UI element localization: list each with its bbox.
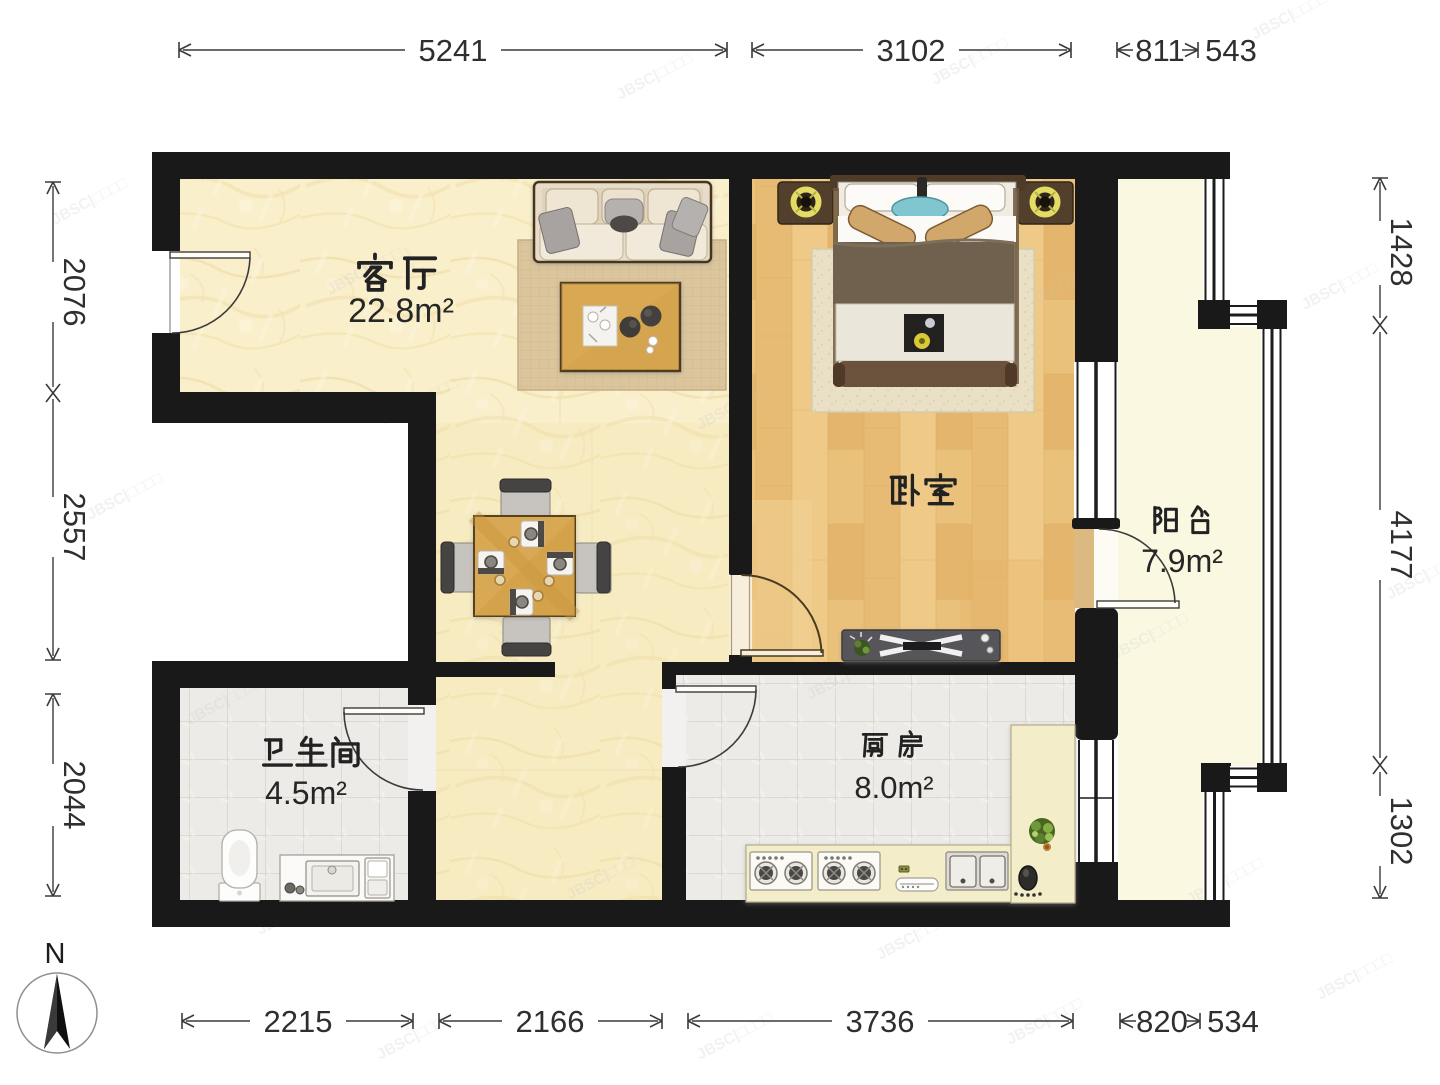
- svg-text:22.8m²: 22.8m²: [348, 292, 454, 330]
- svg-text:8.0m²: 8.0m²: [854, 770, 933, 805]
- svg-text:2215: 2215: [264, 1004, 333, 1039]
- svg-text:3102: 3102: [877, 33, 946, 68]
- svg-text:1428: 1428: [1384, 218, 1419, 287]
- svg-text:543: 543: [1205, 33, 1257, 68]
- svg-text:7.9m²: 7.9m²: [1141, 543, 1223, 579]
- svg-text:2557: 2557: [57, 493, 92, 562]
- svg-text:5241: 5241: [419, 33, 488, 68]
- svg-text:4177: 4177: [1384, 511, 1419, 580]
- svg-text:2166: 2166: [516, 1004, 585, 1039]
- svg-text:811: 811: [1135, 33, 1184, 68]
- svg-text:820: 820: [1136, 1004, 1188, 1039]
- svg-text:1302: 1302: [1384, 797, 1419, 866]
- svg-text:2044: 2044: [57, 761, 92, 830]
- svg-text:2076: 2076: [57, 258, 92, 327]
- svg-text:534: 534: [1207, 1004, 1259, 1039]
- svg-text:3736: 3736: [846, 1004, 915, 1039]
- svg-text:N: N: [45, 938, 66, 970]
- svg-text:4.5m²: 4.5m²: [265, 775, 347, 811]
